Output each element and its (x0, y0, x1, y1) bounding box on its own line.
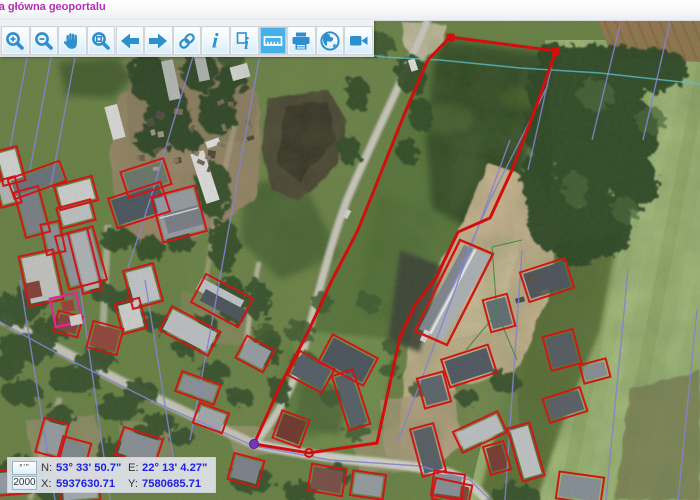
svg-text:i: i (244, 34, 249, 53)
svg-text:i: i (211, 29, 219, 52)
